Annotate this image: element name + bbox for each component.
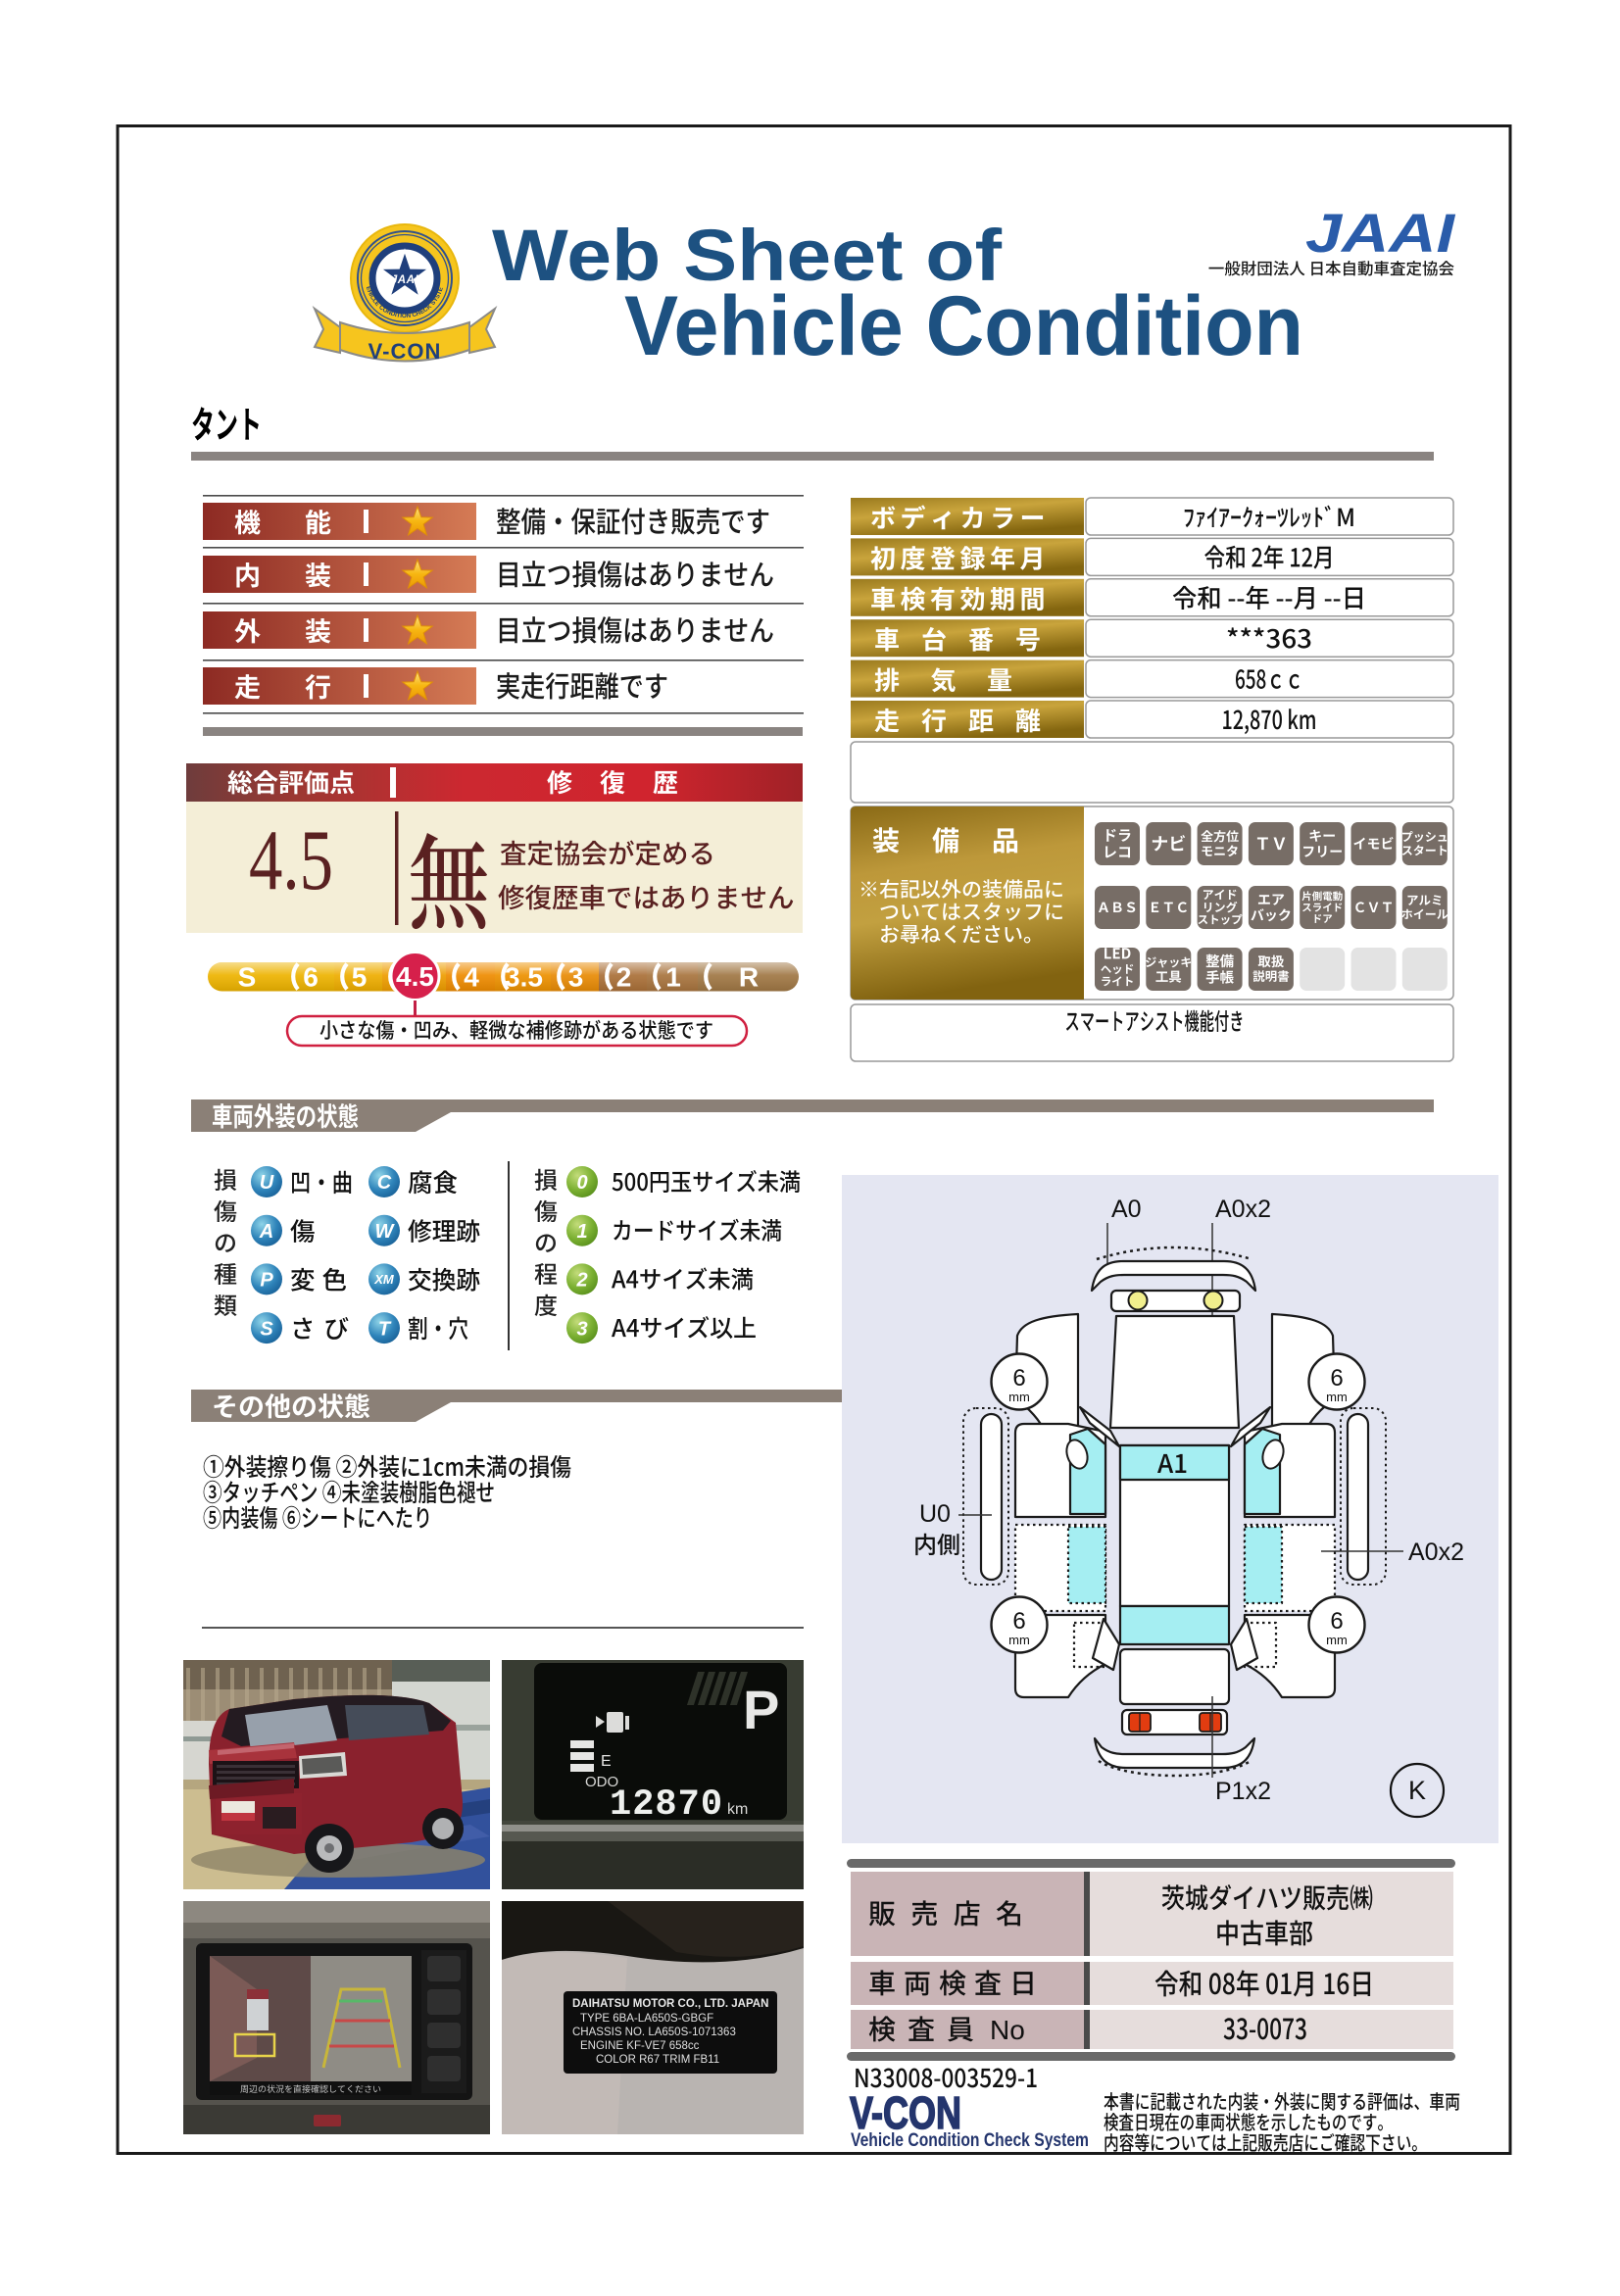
svg-text:U0: U0 [919,1500,951,1528]
svg-text:Vehicle Condition: Vehicle Condition [624,279,1303,373]
svg-text:V-CON: V-CON [368,339,442,364]
svg-text:ENGINE KF-VE7 658cc: ENGINE KF-VE7 658cc [580,2040,700,2052]
svg-text:K: K [1408,1776,1426,1805]
svg-text:4.5: 4.5 [249,813,333,908]
svg-text:1: 1 [576,1221,587,1243]
svg-text:JAAI: JAAI [391,274,419,286]
svg-text:U: U [260,1172,274,1194]
svg-text:0: 0 [576,1172,587,1194]
svg-text:XM: XM [373,1272,395,1287]
svg-text:R: R [739,962,759,993]
svg-text:P: P [260,1270,273,1292]
svg-text:A: A [259,1221,273,1243]
svg-text:A0x2: A0x2 [1408,1539,1464,1566]
svg-text:W: W [375,1221,396,1243]
svg-text:DAIHATSU MOTOR CO., LTD. JAPAN: DAIHATSU MOTOR CO., LTD. JAPAN [572,1998,768,2010]
svg-text:mm: mm [1008,1390,1030,1404]
svg-text:No: No [990,2015,1025,2045]
svg-text:4: 4 [464,962,479,993]
svg-text:2: 2 [575,1270,587,1292]
svg-text:12870: 12870 [610,1784,723,1826]
svg-text:CHASSIS NO. LA650S-1071363: CHASSIS NO. LA650S-1071363 [572,2027,736,2038]
svg-text:3: 3 [576,1318,587,1340]
svg-text:km: km [727,1801,748,1818]
svg-text:6: 6 [1330,1365,1343,1392]
svg-text:COLOR R67 TRIM FB11: COLOR R67 TRIM FB11 [596,2054,719,2066]
svg-text:mm: mm [1326,1390,1348,1404]
svg-text:2: 2 [616,962,632,993]
svg-text:mm: mm [1326,1633,1348,1647]
svg-text:T: T [378,1318,392,1340]
svg-text:JAAI: JAAI [1305,202,1456,264]
svg-text:Vehicle Condition Check System: Vehicle Condition Check System [851,2130,1089,2151]
svg-text:S: S [260,1318,273,1340]
svg-text:mm: mm [1008,1633,1030,1647]
svg-text:S: S [238,962,257,993]
svg-text:P: P [743,1679,779,1740]
svg-text:6: 6 [1330,1608,1343,1635]
svg-text:3.5: 3.5 [505,962,543,993]
svg-text:6: 6 [303,962,319,993]
svg-text:E: E [601,1753,612,1770]
svg-text:6: 6 [1012,1608,1025,1635]
svg-text:4.5: 4.5 [396,961,434,992]
svg-text:A0x2: A0x2 [1215,1196,1271,1223]
svg-text:TYPE 6BA-LA650S-GBGF: TYPE 6BA-LA650S-GBGF [580,2013,713,2025]
svg-text:C: C [377,1172,392,1194]
svg-text:A0: A0 [1111,1196,1142,1223]
svg-text:1: 1 [665,962,681,993]
svg-text:3: 3 [568,962,584,993]
svg-text:P1x2: P1x2 [1215,1778,1271,1805]
svg-text:5: 5 [352,962,368,993]
svg-text:6: 6 [1012,1365,1025,1392]
